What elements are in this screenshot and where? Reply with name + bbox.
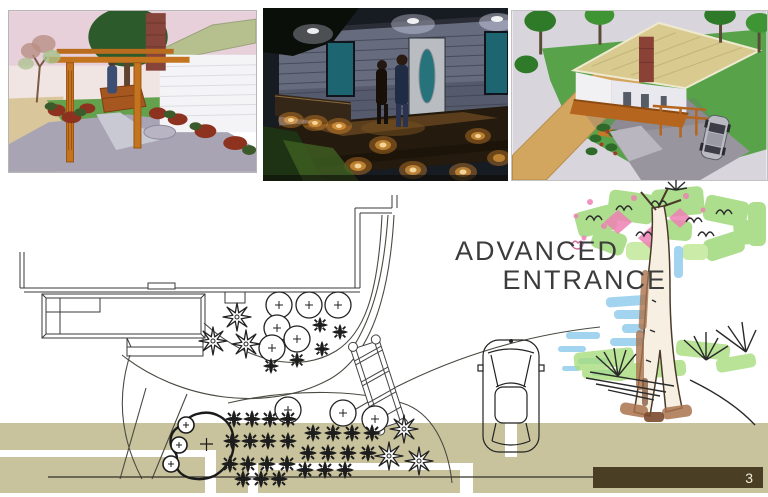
- upper-bed-plants: [199, 292, 351, 374]
- window-left: [327, 42, 354, 96]
- render-pergola-day: [8, 10, 257, 173]
- page-number: 3: [745, 470, 753, 486]
- footer-page-bar: 3: [593, 467, 763, 488]
- render-pergola-day-image: [9, 11, 256, 172]
- tree-marker-sketch: [556, 180, 768, 445]
- entry-deck: [42, 294, 205, 356]
- slide-title: ADVANCED ENTRANCE: [455, 237, 667, 295]
- boulder: [144, 125, 176, 139]
- title-line-2: ENTRANCE: [455, 266, 667, 295]
- title-line-1: ADVANCED: [455, 237, 667, 266]
- render-aerial-image: [512, 11, 767, 180]
- slide-page: ADVANCED ENTRANCE 3: [0, 0, 768, 497]
- render-deck-night-image: [263, 8, 508, 181]
- house-outline: [20, 195, 397, 303]
- window-right: [485, 32, 508, 94]
- front-door: [409, 38, 445, 120]
- render-deck-night: [263, 8, 508, 181]
- render-aerial-site: [511, 10, 768, 181]
- person-figure: [107, 59, 117, 94]
